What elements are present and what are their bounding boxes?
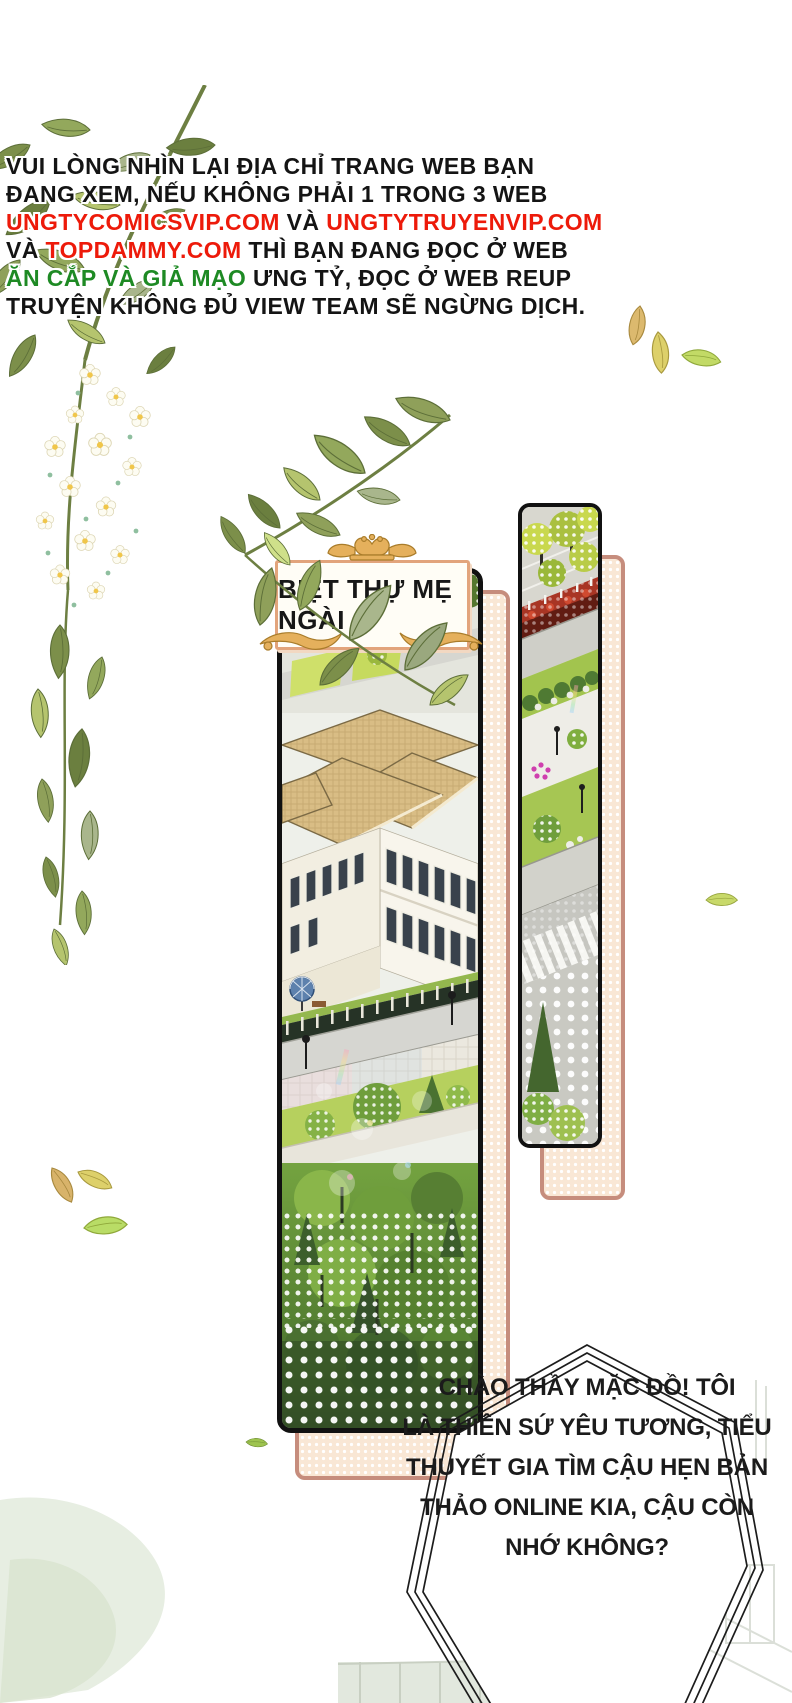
warning-line: VÀ TOPDAMMY.COM THÌ BẠN ĐANG ĐỌC Ở WEB bbox=[6, 236, 492, 264]
flower-clusters bbox=[36, 364, 150, 607]
villa-facade-left bbox=[282, 828, 380, 1024]
speech-bubble-line: THUYẾT GIA TÌM CẬU HẸN BẢN bbox=[392, 1448, 782, 1488]
warning-line: UNGTYCOMICSVIP.COM VÀ UNGTYTRUYENVIP.COM bbox=[6, 208, 492, 236]
leaf-single-left bbox=[83, 1213, 127, 1238]
street-lamp bbox=[303, 992, 455, 1069]
villa-fence bbox=[282, 979, 478, 1043]
speech-bubble-text: CHÀO THẦY MẶC ĐỒ! TÔILÀ THIÊN SỨ YÊU TƯƠ… bbox=[392, 1368, 782, 1568]
branch-leaves-lower bbox=[29, 624, 112, 965]
location-label-plaque: BIỆT THỰ MẸ NGÀI bbox=[275, 560, 470, 650]
street-scene-art bbox=[522, 507, 598, 1144]
speech-bubble-line: THẢO ONLINE KIA, CẬU CÒN bbox=[392, 1488, 782, 1528]
warning-line: ĐANG XEM, NẾU KHÔNG PHẢI 1 TRONG 3 WEB bbox=[6, 180, 492, 208]
villa-facade-right bbox=[380, 828, 478, 1004]
leaf-mid-right bbox=[705, 889, 738, 910]
speech-bubble-line: NHỚ KHÔNG? bbox=[392, 1528, 782, 1568]
sparkle-flares bbox=[316, 1049, 432, 1196]
leaf-pair-left bbox=[49, 1162, 114, 1206]
flower-bed-magenta bbox=[531, 762, 550, 779]
verge-trees bbox=[305, 1075, 470, 1147]
speech-bubble-line: LÀ THIÊN SỨ YÊU TƯƠNG, TIỂU bbox=[392, 1408, 782, 1448]
umbrella-icon bbox=[290, 977, 326, 1011]
leaf-small-bottom bbox=[245, 1435, 268, 1451]
leaf-trio-top-right bbox=[621, 305, 722, 374]
street-panel bbox=[518, 503, 602, 1148]
warning-line: VUI LÒNG NHÌN LẠI ĐỊA CHỈ TRANG WEB BẠN bbox=[6, 152, 492, 180]
villa-roof bbox=[282, 710, 478, 845]
warning-line: ĂN CẮP VÀ GIẢ MẠO ƯNG TỶ, ĐỌC Ở WEB REUP bbox=[6, 264, 492, 292]
warning-line: TRUYỆN KHÔNG ĐỦ VIEW TEAM SẼ NGỪNG DỊCH. bbox=[6, 292, 492, 320]
speech-bubble-line: CHÀO THẦY MẶC ĐỒ! TÔI bbox=[392, 1368, 782, 1408]
piracy-warning-text: VUI LÒNG NHÌN LẠI ĐỊA CHỈ TRANG WEB BẠNĐ… bbox=[6, 152, 492, 320]
hedge-row bbox=[522, 671, 598, 711]
woods-trees bbox=[284, 1170, 475, 1399]
villa-panel bbox=[277, 568, 483, 1433]
villa-scene-art bbox=[282, 573, 478, 1428]
comic-page: BIỆT THỰ MẸ NGÀI bbox=[0, 0, 792, 1703]
bottom-bushes bbox=[522, 1002, 585, 1141]
location-label-text: BIỆT THỰ MẸ NGÀI bbox=[278, 574, 467, 636]
wall-trees bbox=[522, 507, 598, 587]
